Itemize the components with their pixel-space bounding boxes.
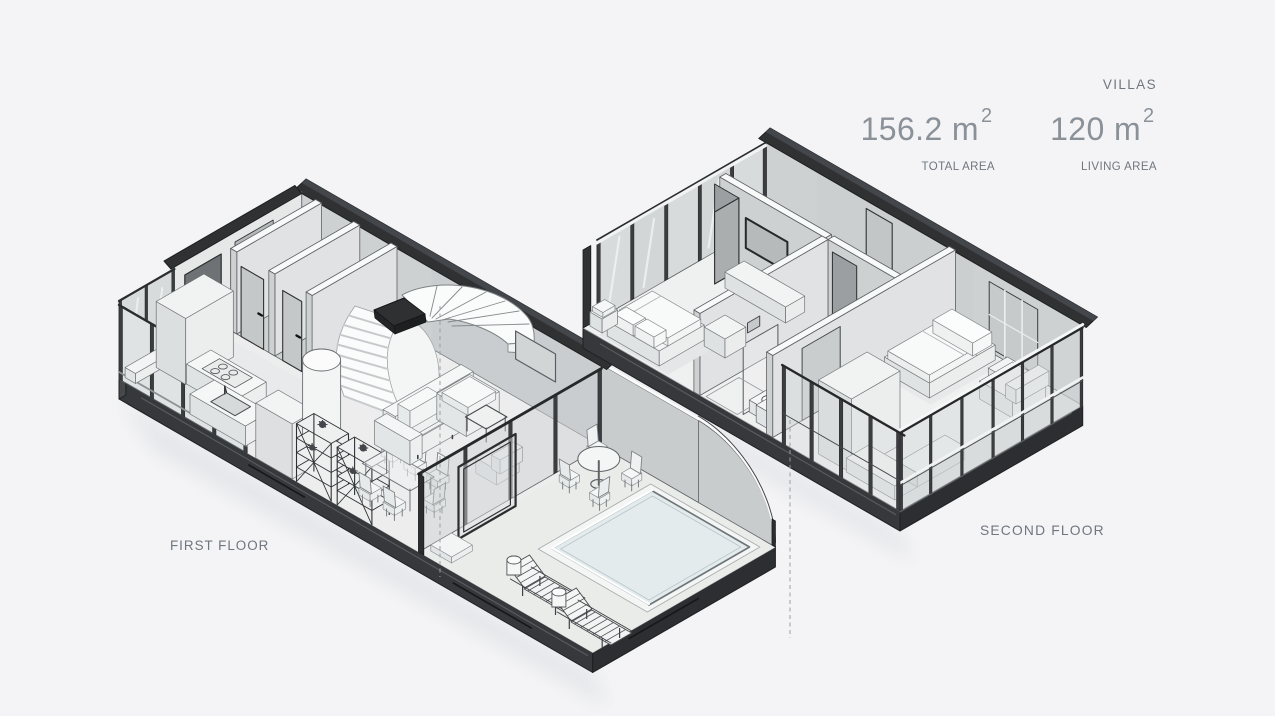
svg-text:TOTAL AREA: TOTAL AREA: [922, 161, 995, 173]
svg-text:2: 2: [1143, 105, 1154, 127]
svg-text:LIVING AREA: LIVING AREA: [1081, 161, 1157, 173]
svg-text:156.2 m: 156.2 m: [861, 111, 979, 147]
svg-text:2: 2: [981, 105, 992, 127]
svg-text:FIRST FLOOR: FIRST FLOOR: [170, 538, 269, 553]
svg-text:VILLAS: VILLAS: [1103, 77, 1157, 92]
svg-text:SECOND FLOOR: SECOND FLOOR: [980, 523, 1105, 538]
svg-text:120 m: 120 m: [1050, 111, 1141, 147]
